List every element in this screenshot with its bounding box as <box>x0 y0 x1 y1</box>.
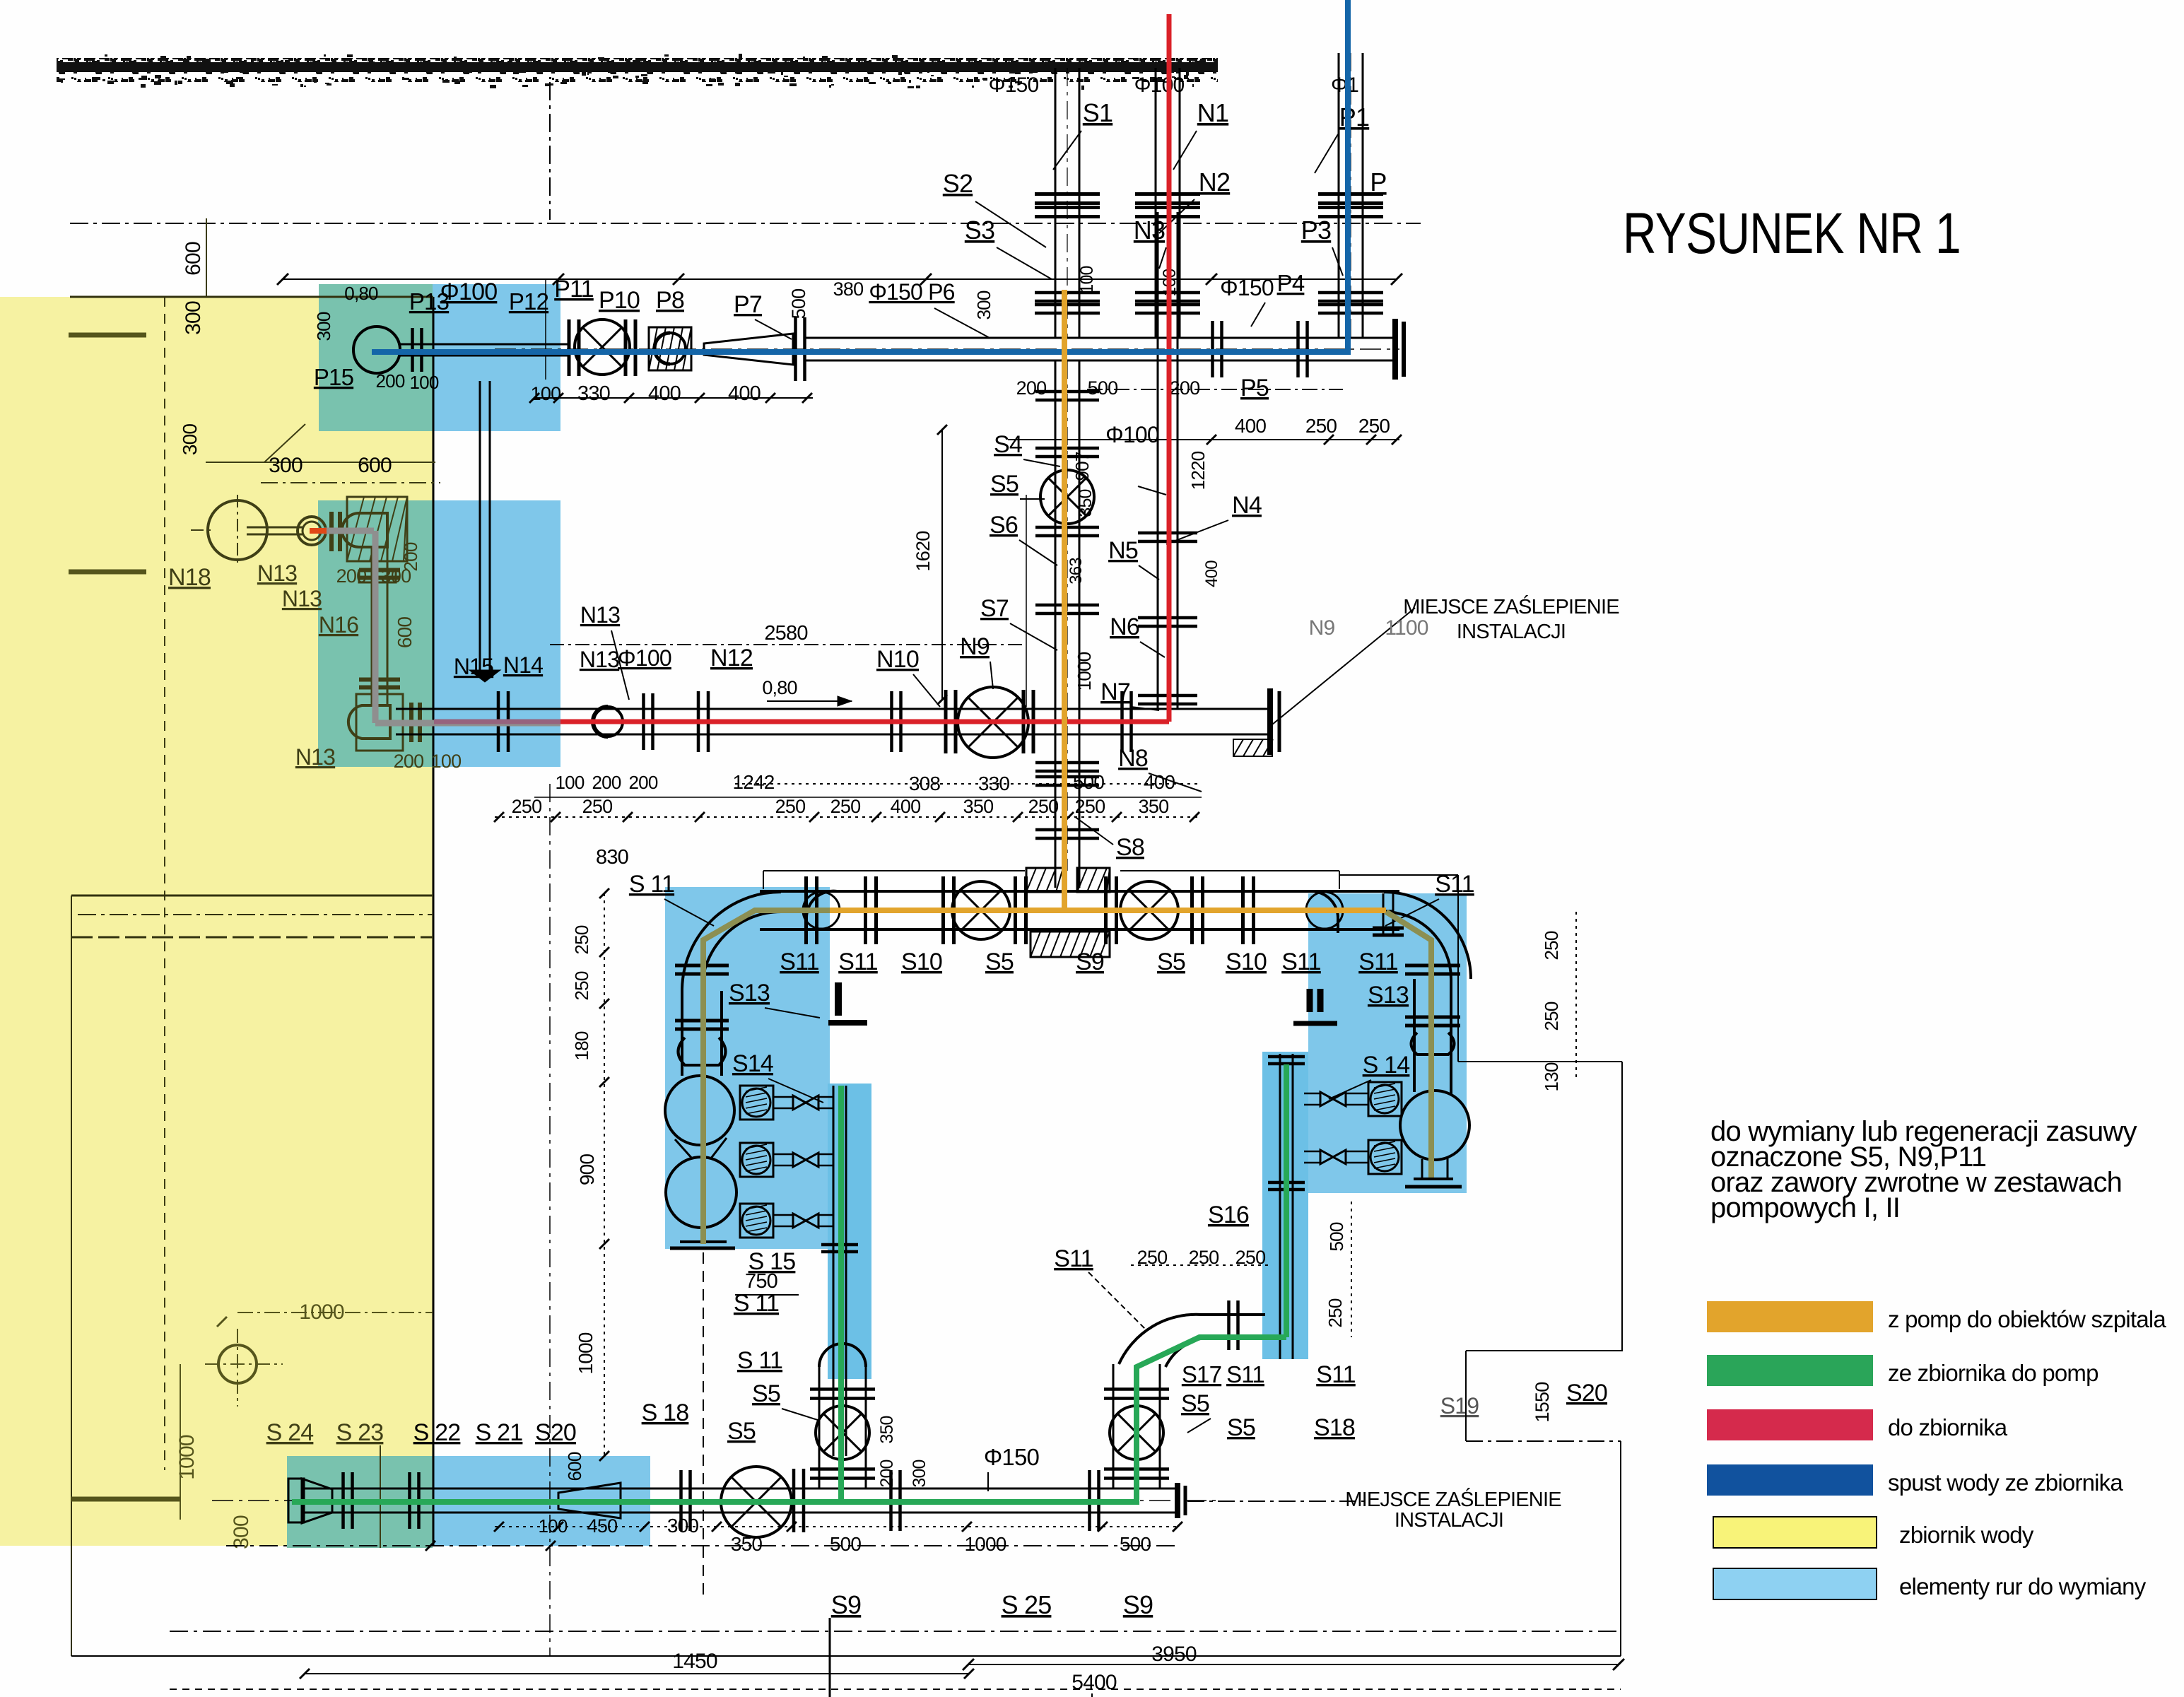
svg-text:1550: 1550 <box>1532 1382 1553 1423</box>
svg-text:400: 400 <box>648 382 681 405</box>
svg-text:S16: S16 <box>1208 1202 1249 1228</box>
svg-text:600: 600 <box>394 617 416 649</box>
svg-text:S9: S9 <box>1123 1590 1153 1619</box>
svg-text:250: 250 <box>1028 796 1059 817</box>
svg-text:300: 300 <box>182 301 205 335</box>
svg-text:S 11: S 11 <box>737 1347 782 1374</box>
svg-text:N18: N18 <box>168 564 211 591</box>
svg-text:200: 200 <box>400 542 421 571</box>
svg-text:0,80: 0,80 <box>762 677 797 698</box>
svg-text:400: 400 <box>891 796 921 817</box>
svg-text:S9: S9 <box>831 1590 861 1619</box>
svg-text:830: 830 <box>596 846 628 869</box>
svg-text:200: 200 <box>1170 377 1200 399</box>
svg-text:P7: P7 <box>734 291 762 318</box>
svg-text:200: 200 <box>1016 377 1047 399</box>
svg-text:100: 100 <box>431 751 462 772</box>
svg-text:S 18: S 18 <box>642 1399 689 1426</box>
svg-text:N14: N14 <box>503 652 543 678</box>
svg-text:200: 200 <box>336 565 367 587</box>
svg-text:330: 330 <box>577 382 610 405</box>
svg-text:600: 600 <box>564 1452 585 1481</box>
svg-text:363: 363 <box>1067 558 1086 585</box>
svg-text:400: 400 <box>728 382 761 405</box>
svg-text:250: 250 <box>1235 1247 1266 1268</box>
svg-text:S 23: S 23 <box>336 1419 384 1446</box>
svg-text:Φ150: Φ150 <box>989 74 1039 97</box>
svg-text:N16: N16 <box>319 612 358 638</box>
svg-text:300: 300 <box>313 312 334 341</box>
svg-text:Φ100: Φ100 <box>1105 422 1159 447</box>
svg-text:600: 600 <box>358 454 392 477</box>
svg-text:300: 300 <box>667 1515 699 1537</box>
svg-text:500: 500 <box>1073 771 1105 793</box>
svg-text:350: 350 <box>1139 796 1169 817</box>
svg-text:200: 200 <box>394 751 424 772</box>
svg-text:S5: S5 <box>985 949 1014 975</box>
svg-text:N6: N6 <box>1110 613 1139 640</box>
svg-text:N13: N13 <box>282 586 322 611</box>
svg-text:S11: S11 <box>1358 949 1398 975</box>
svg-text:250: 250 <box>830 796 861 817</box>
svg-text:P4: P4 <box>1277 270 1305 296</box>
svg-text:350: 350 <box>963 796 994 817</box>
svg-text:N5: N5 <box>1108 537 1138 564</box>
svg-text:130: 130 <box>1541 1062 1562 1091</box>
svg-text:zbiornik wody: zbiornik wody <box>1899 1522 2034 1548</box>
svg-text:S 11: S 11 <box>629 871 674 898</box>
svg-text:Φ100: Φ100 <box>618 645 671 671</box>
svg-text:S17: S17 <box>1182 1361 1221 1387</box>
svg-text:N13: N13 <box>580 602 620 628</box>
svg-text:S11: S11 <box>780 949 819 975</box>
svg-text:S11: S11 <box>1054 1245 1093 1272</box>
svg-text:200: 200 <box>592 772 621 793</box>
svg-text:N15: N15 <box>454 654 493 679</box>
svg-text:300: 300 <box>230 1515 253 1549</box>
svg-text:S11: S11 <box>838 949 878 975</box>
svg-text:250: 250 <box>1189 1247 1219 1268</box>
svg-text:3950: 3950 <box>1151 1643 1197 1666</box>
svg-text:S9: S9 <box>1076 949 1104 975</box>
svg-text:350: 350 <box>731 1533 763 1555</box>
svg-text:S7: S7 <box>980 595 1009 622</box>
svg-text:Φ150 P6: Φ150 P6 <box>869 279 954 305</box>
svg-text:1000: 1000 <box>575 1332 597 1374</box>
svg-text:1000: 1000 <box>964 1533 1006 1555</box>
svg-text:N9: N9 <box>960 633 990 660</box>
svg-text:S4: S4 <box>994 431 1022 458</box>
svg-text:1000: 1000 <box>1074 652 1095 691</box>
svg-text:ze zbiornika do pomp: ze zbiornika do pomp <box>1888 1360 2098 1386</box>
svg-text:S 14: S 14 <box>1363 1052 1410 1079</box>
svg-text:300: 300 <box>179 424 201 456</box>
svg-text:S10: S10 <box>1226 949 1267 975</box>
svg-text:S14: S14 <box>732 1050 773 1077</box>
svg-text:S20: S20 <box>535 1419 576 1446</box>
svg-text:907: 907 <box>1072 452 1093 481</box>
svg-text:250: 250 <box>1541 931 1562 960</box>
svg-text:250: 250 <box>1325 1298 1346 1327</box>
svg-text:400: 400 <box>1144 771 1175 793</box>
svg-text:500: 500 <box>830 1533 862 1555</box>
svg-text:S8: S8 <box>1116 834 1144 861</box>
svg-text:400: 400 <box>1202 560 1221 587</box>
svg-text:308: 308 <box>909 773 941 794</box>
svg-text:500: 500 <box>1088 377 1118 399</box>
svg-text:250: 250 <box>1075 796 1105 817</box>
svg-text:P: P <box>1370 168 1386 196</box>
svg-text:1450: 1450 <box>672 1650 717 1673</box>
svg-text:S5: S5 <box>1181 1390 1209 1417</box>
svg-text:250: 250 <box>582 796 613 817</box>
svg-text:S18: S18 <box>1314 1414 1355 1441</box>
svg-text:S11: S11 <box>1281 949 1321 975</box>
svg-text:900: 900 <box>576 1154 598 1186</box>
svg-text:250: 250 <box>1137 1247 1168 1268</box>
svg-text:180: 180 <box>571 1031 592 1060</box>
svg-text:spust wody ze zbiornika: spust wody ze zbiornika <box>1888 1469 2123 1496</box>
svg-text:S11: S11 <box>1316 1361 1356 1388</box>
svg-text:P8: P8 <box>656 287 684 314</box>
svg-text:S 24: S 24 <box>266 1419 314 1446</box>
svg-text:Φ100: Φ100 <box>440 278 498 305</box>
svg-text:P3: P3 <box>1301 216 1331 245</box>
svg-text:250: 250 <box>512 796 542 817</box>
svg-text:N13: N13 <box>580 647 619 672</box>
svg-text:1242: 1242 <box>732 771 774 793</box>
svg-text:250: 250 <box>1358 415 1390 437</box>
svg-text:S3: S3 <box>965 216 994 245</box>
svg-text:N4: N4 <box>1232 492 1262 519</box>
svg-text:Φ150: Φ150 <box>984 1444 1040 1470</box>
svg-text:1000: 1000 <box>175 1435 199 1480</box>
svg-text:350: 350 <box>1076 489 1096 517</box>
svg-text:N8: N8 <box>1118 745 1148 772</box>
svg-text:N2: N2 <box>1199 168 1230 196</box>
svg-text:1220: 1220 <box>1187 451 1209 490</box>
svg-text:INSTALACJI: INSTALACJI <box>1457 621 1566 643</box>
svg-text:200: 200 <box>376 370 405 392</box>
svg-text:5400: 5400 <box>1072 1671 1117 1694</box>
svg-text:N9: N9 <box>1309 616 1335 640</box>
svg-text:300: 300 <box>910 1460 929 1487</box>
svg-text:S13: S13 <box>1368 982 1409 1009</box>
svg-text:N10: N10 <box>876 646 919 673</box>
svg-text:S11: S11 <box>1226 1361 1264 1387</box>
svg-text:S13: S13 <box>729 980 770 1006</box>
svg-text:pompowych I, II: pompowych I, II <box>1710 1192 1900 1223</box>
svg-text:250: 250 <box>1305 415 1337 437</box>
svg-text:N13: N13 <box>257 560 297 586</box>
svg-text:Φ1: Φ1 <box>1331 74 1358 97</box>
svg-text:S20: S20 <box>1566 1380 1607 1407</box>
svg-text:S1: S1 <box>1083 98 1112 127</box>
svg-text:100: 100 <box>1077 266 1097 293</box>
svg-text:300: 300 <box>973 290 994 319</box>
svg-text:N7: N7 <box>1100 679 1130 705</box>
svg-text:S19: S19 <box>1440 1393 1479 1419</box>
svg-text:100: 100 <box>556 772 585 793</box>
svg-text:S5: S5 <box>752 1380 780 1407</box>
svg-text:RYSUNEK NR 1: RYSUNEK NR 1 <box>1623 201 1961 266</box>
svg-text:S 25: S 25 <box>1002 1590 1052 1619</box>
svg-text:500: 500 <box>1120 1533 1151 1555</box>
svg-text:do zbiornika: do zbiornika <box>1888 1414 2008 1440</box>
svg-text:0,80: 0,80 <box>344 283 378 304</box>
svg-text:500: 500 <box>1326 1222 1347 1251</box>
svg-text:250: 250 <box>571 925 592 954</box>
svg-text:P5: P5 <box>1240 375 1269 401</box>
svg-text:Φ100: Φ100 <box>1134 74 1185 97</box>
svg-text:S5: S5 <box>727 1418 756 1445</box>
svg-text:N12: N12 <box>710 645 753 671</box>
svg-text:250: 250 <box>571 971 592 1000</box>
svg-text:P10: P10 <box>599 287 640 314</box>
svg-text:1100: 1100 <box>1385 616 1428 640</box>
svg-text:MIEJSCE ZAŚLEPIENIE: MIEJSCE ZAŚLEPIENIE <box>1345 1487 1561 1511</box>
svg-text:100: 100 <box>410 372 439 393</box>
svg-text:400: 400 <box>1235 415 1267 437</box>
svg-text:S 21: S 21 <box>476 1419 523 1446</box>
svg-text:380: 380 <box>833 278 864 300</box>
svg-text:S6: S6 <box>990 512 1018 539</box>
svg-text:250: 250 <box>775 796 806 817</box>
svg-text:P12: P12 <box>509 288 548 315</box>
svg-text:elementy rur do wymiany: elementy rur do wymiany <box>1899 1573 2147 1599</box>
svg-text:2580: 2580 <box>764 622 807 645</box>
svg-text:330: 330 <box>978 773 1010 794</box>
svg-text:S 22: S 22 <box>413 1419 461 1446</box>
svg-text:S 11: S 11 <box>734 1290 779 1317</box>
svg-text:P1: P1 <box>1339 102 1369 131</box>
svg-text:200: 200 <box>877 1460 897 1487</box>
svg-text:S5: S5 <box>1157 949 1185 975</box>
svg-text:N13: N13 <box>295 744 335 770</box>
svg-text:200: 200 <box>629 772 658 793</box>
svg-text:Φ150: Φ150 <box>1220 275 1274 300</box>
svg-text:P11: P11 <box>554 276 594 303</box>
svg-text:S2: S2 <box>943 169 973 198</box>
svg-text:N1: N1 <box>1197 98 1228 127</box>
svg-text:600: 600 <box>182 242 205 276</box>
svg-text:N3: N3 <box>1134 216 1165 245</box>
svg-text:1620: 1620 <box>912 532 934 572</box>
svg-text:350: 350 <box>877 1416 897 1443</box>
svg-text:MIEJSCE ZAŚLEPIENIE: MIEJSCE ZAŚLEPIENIE <box>1403 594 1619 618</box>
svg-text:P15: P15 <box>314 364 353 390</box>
svg-text:z pomp do obiektów szpitala: z pomp do obiektów szpitala <box>1888 1306 2166 1332</box>
svg-text:300: 300 <box>269 454 303 477</box>
svg-text:INSTALACJI: INSTALACJI <box>1395 1509 1503 1532</box>
svg-text:S5: S5 <box>1227 1414 1255 1441</box>
svg-text:500: 500 <box>788 289 809 319</box>
svg-text:S5: S5 <box>990 471 1018 498</box>
svg-text:S10: S10 <box>901 949 942 975</box>
svg-text:250: 250 <box>1541 1002 1562 1030</box>
